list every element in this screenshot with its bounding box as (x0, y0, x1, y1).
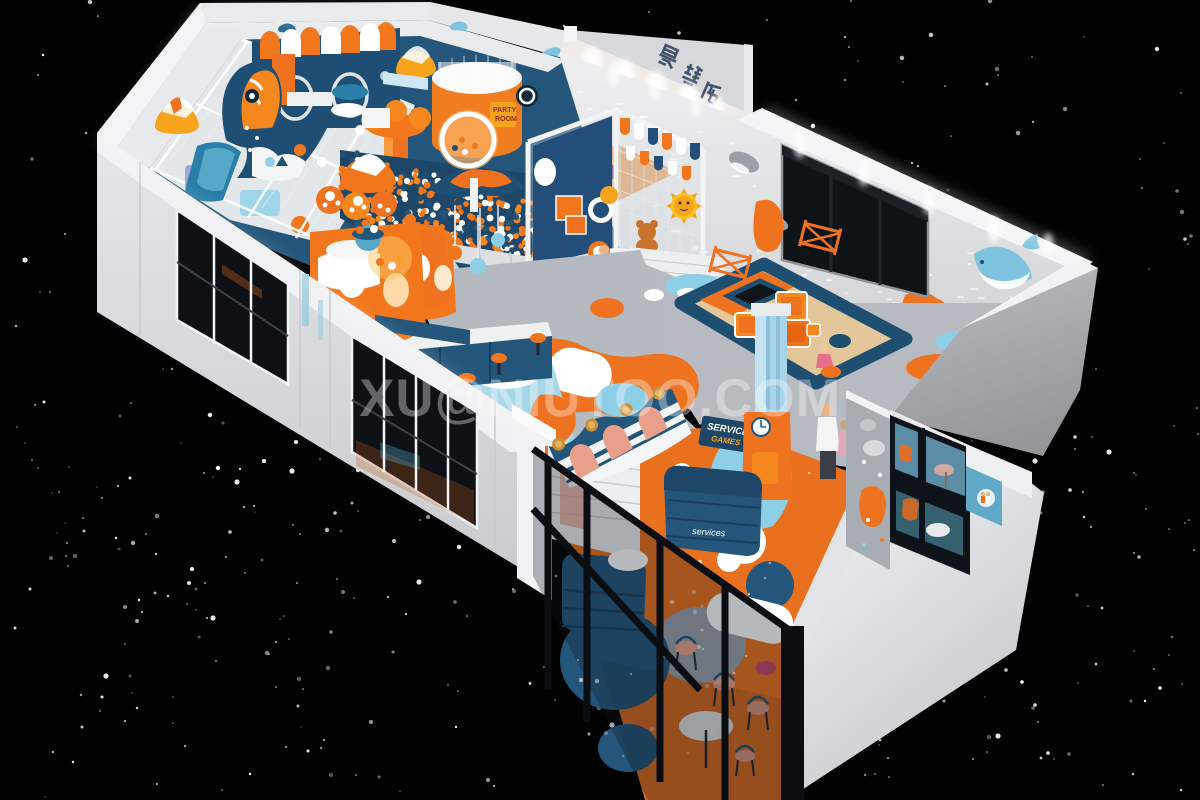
svg-text:XU@NIUTOO.COM: XU@NIUTOO.COM (359, 369, 841, 428)
svg-text:PARTY: PARTY (493, 107, 517, 114)
svg-text:ROOM: ROOM (495, 116, 517, 123)
